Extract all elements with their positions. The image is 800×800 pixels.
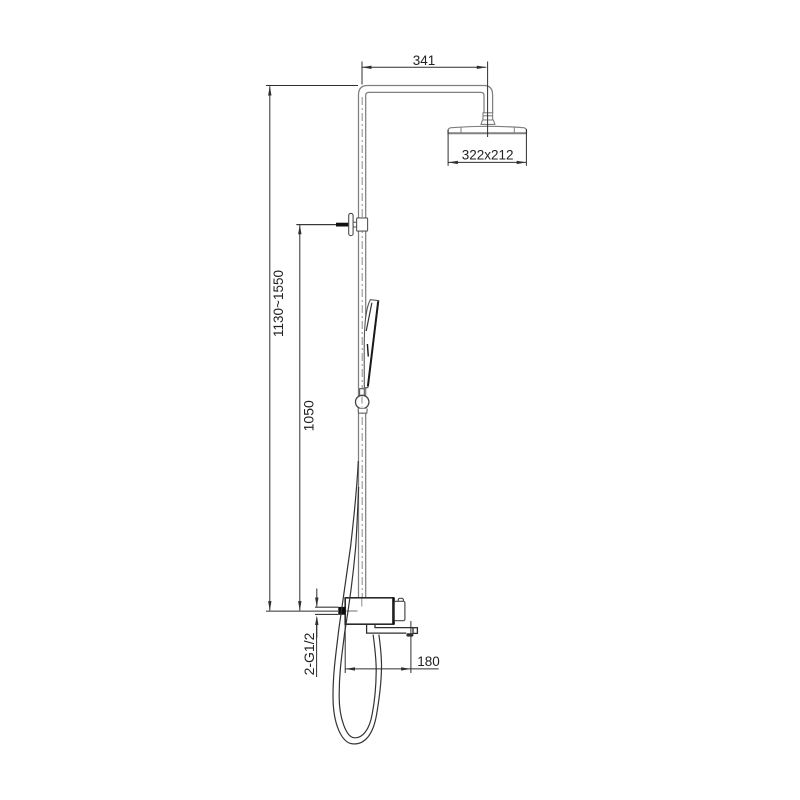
- svg-text:1050: 1050: [301, 400, 317, 431]
- svg-text:322x212: 322x212: [462, 147, 514, 162]
- svg-text:1130~1550: 1130~1550: [271, 270, 286, 337]
- svg-text:341: 341: [413, 53, 436, 68]
- svg-text:180: 180: [417, 654, 440, 669]
- svg-text:2-G1/2: 2-G1/2: [301, 632, 317, 675]
